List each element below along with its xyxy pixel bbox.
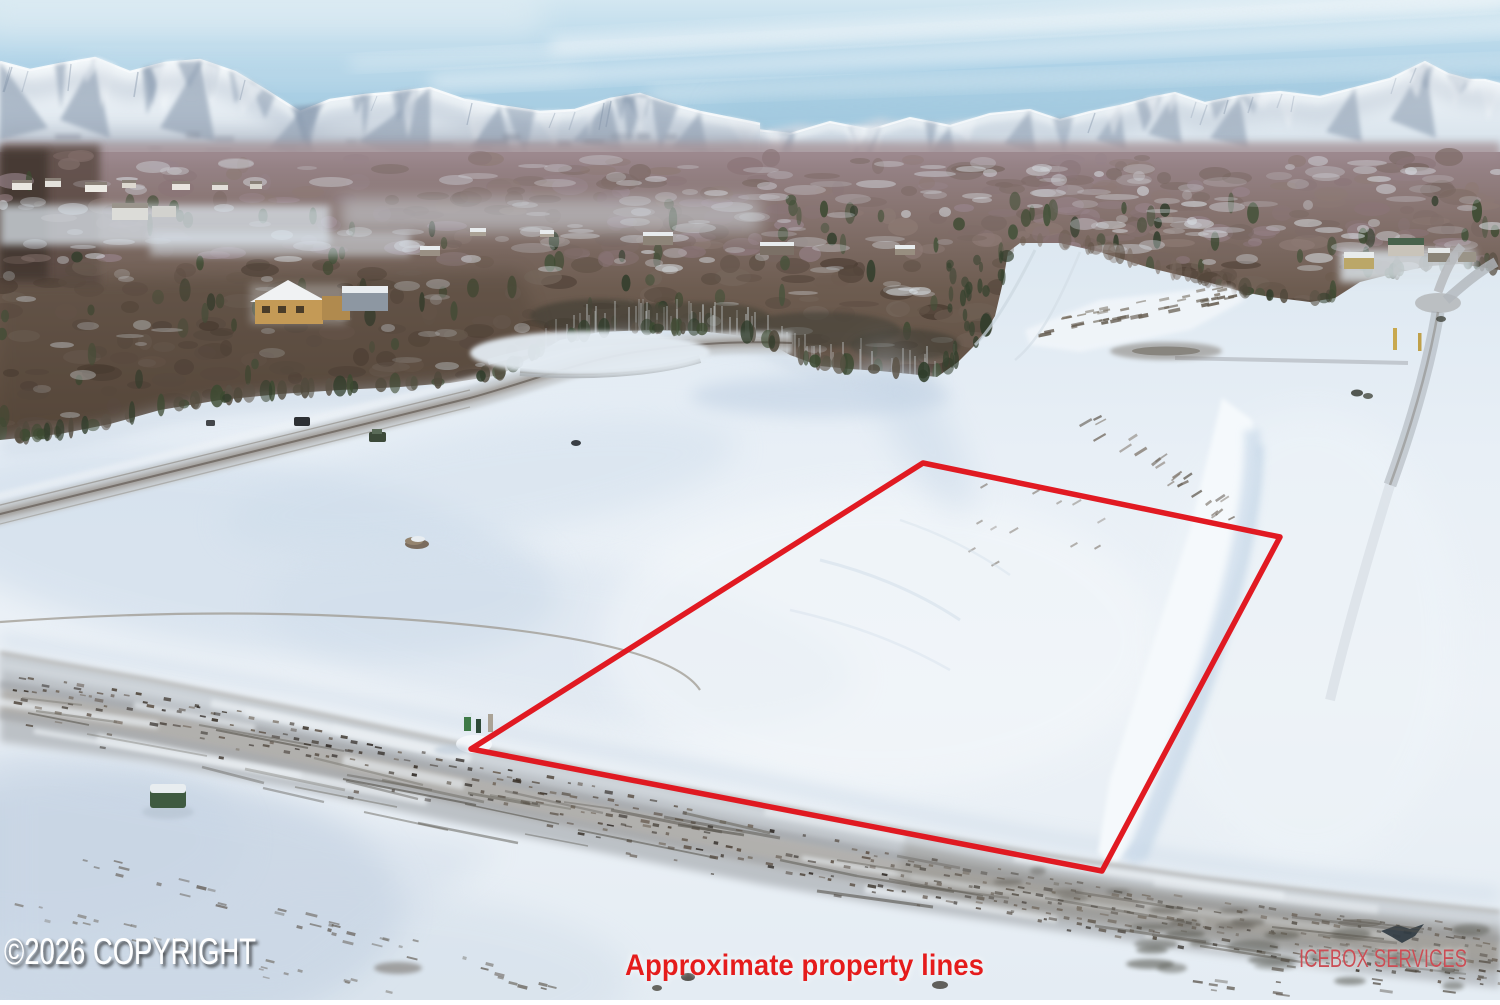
svg-text:ICEBOX SERVICES: ICEBOX SERVICES [1299,945,1467,973]
svg-text:Approximate property lines: Approximate property lines [625,949,984,982]
svg-text:©2026 COPYRIGHT: ©2026 COPYRIGHT [4,931,256,972]
